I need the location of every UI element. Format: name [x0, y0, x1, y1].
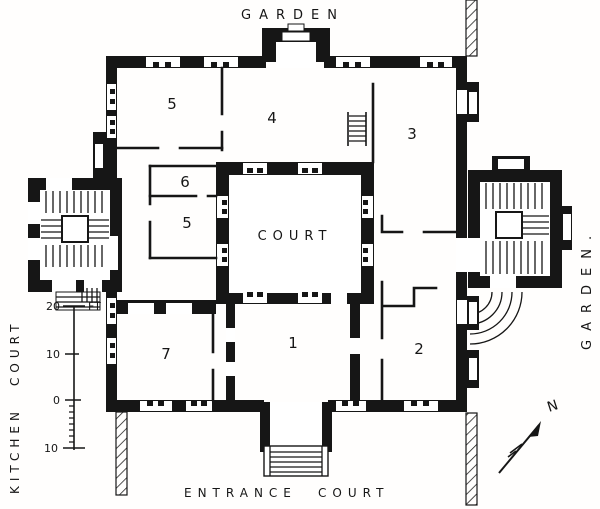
north-arrow-icon: N — [499, 397, 560, 473]
room-number-2: 2 — [414, 340, 424, 358]
label-court: COURT — [258, 229, 333, 244]
scale-tick-0: 0 — [53, 394, 60, 407]
main-staircase — [348, 112, 366, 146]
scale-bar: 20 FT 10 0 10 — [44, 300, 101, 455]
room-number-6: 6 — [180, 173, 190, 191]
label-kitchen-court-word1: KITCHEN — [8, 407, 22, 494]
room-number-5-west: 5 — [182, 214, 192, 232]
scale-tick-10-upper: 10 — [46, 348, 60, 361]
garden-pavilion — [456, 156, 572, 288]
kitchen-court-pavilion — [28, 178, 122, 310]
label-garden-right: GARDEN. — [580, 227, 595, 350]
label-entrance-court-word1: ENTRANCE — [184, 486, 297, 500]
room-number-5-northwest: 5 — [167, 95, 177, 113]
room-number-7: 7 — [161, 345, 171, 363]
label-kitchen-court-word2: COURT — [8, 320, 22, 386]
room-number-1: 1 — [288, 334, 298, 352]
entrance-porch — [260, 402, 332, 476]
scale-tick-20: 20 — [46, 300, 60, 313]
garden-porch — [262, 24, 330, 68]
scale-tick-10-lower: 10 — [44, 442, 58, 455]
floor-plan: 20 FT 10 0 10 N GARDEN COURT ENTRANCE CO… — [0, 0, 600, 509]
room-number-3: 3 — [407, 125, 417, 143]
north-label: N — [545, 397, 560, 415]
scale-unit-ft: FT — [88, 300, 101, 313]
room-number-4: 4 — [267, 109, 277, 127]
label-garden-top: GARDEN — [241, 8, 345, 23]
floor-plan-drawing: 20 FT 10 0 10 N GARDEN COURT ENTRANCE CO… — [0, 0, 600, 509]
label-entrance-court-word2: COURT — [318, 486, 389, 500]
